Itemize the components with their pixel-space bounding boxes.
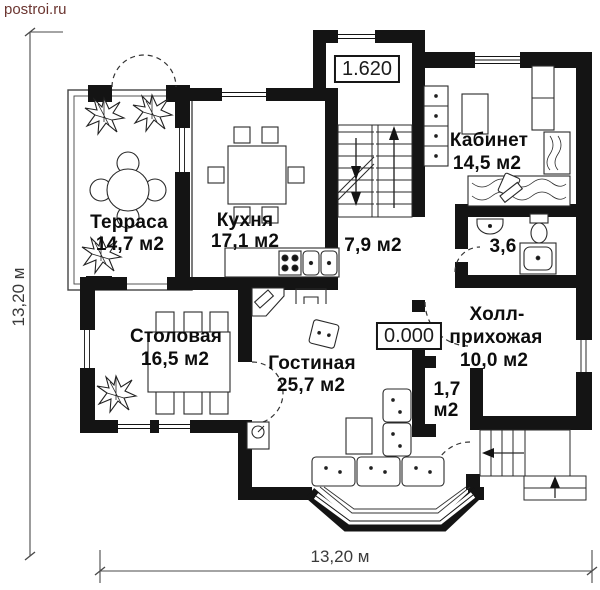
dimension-label-bottom: 13,20 м [311, 547, 370, 567]
room-label-dining-name: Столовая [130, 326, 222, 348]
entrance-steps [480, 430, 586, 500]
watermark: postroi.ru [4, 1, 67, 18]
kitchen-furniture [208, 127, 339, 277]
room-label-study-area: 14,5 м2 [453, 153, 521, 175]
room-label-hall-name-1: Холл- [469, 304, 524, 326]
room-label-bathroom-area: 3,6 [489, 236, 516, 258]
room-label-living-name: Гостиная [268, 353, 355, 375]
floor-plan-drawing [0, 0, 600, 590]
room-label-hall-name-2: прихожая [449, 327, 542, 349]
room-label-closet-area-unit: м2 [433, 400, 458, 422]
level-marker-first-floor: 1.620 [334, 55, 400, 83]
room-label-terrace-area: 14,7 м2 [96, 234, 164, 256]
room-label-closet-area-value: 1,7 [433, 379, 460, 401]
room-label-terrace-name: Терраса [90, 212, 168, 234]
room-label-study-name: Кабинет [450, 130, 528, 152]
level-marker-ground: 0.000 [376, 322, 442, 350]
dimension-label-left: 13,20 м [9, 268, 29, 327]
room-label-kitchen-name: Кухня [217, 210, 274, 232]
main-staircase [338, 125, 412, 217]
room-label-hall-area: 10,0 м2 [460, 350, 528, 372]
bay-window [310, 487, 478, 525]
floor-plan-page: postroi.ru Терраса 14,7 м2 Кухня 17,1 м2… [0, 0, 600, 590]
room-label-kitchen-area: 17,1 м2 [211, 231, 279, 253]
room-label-living-area: 25,7 м2 [277, 375, 345, 397]
room-label-stair-hall-area: 7,9 м2 [344, 235, 402, 257]
room-label-dining-area: 16,5 м2 [141, 349, 209, 371]
